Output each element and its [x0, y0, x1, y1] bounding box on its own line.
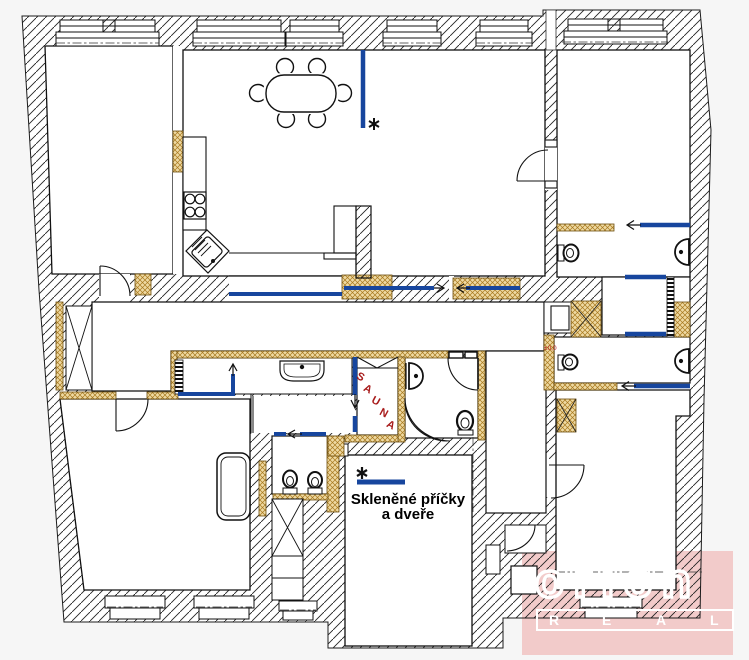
svg-text:R: R: [549, 612, 559, 628]
svg-text:a dveře: a dveře: [382, 506, 435, 523]
svg-text:L: L: [710, 612, 719, 628]
svg-text:A: A: [656, 612, 666, 628]
svg-text:±0,0: ±0,0: [544, 345, 557, 352]
svg-text:E: E: [602, 612, 611, 628]
svg-text:orion: orion: [535, 555, 700, 608]
